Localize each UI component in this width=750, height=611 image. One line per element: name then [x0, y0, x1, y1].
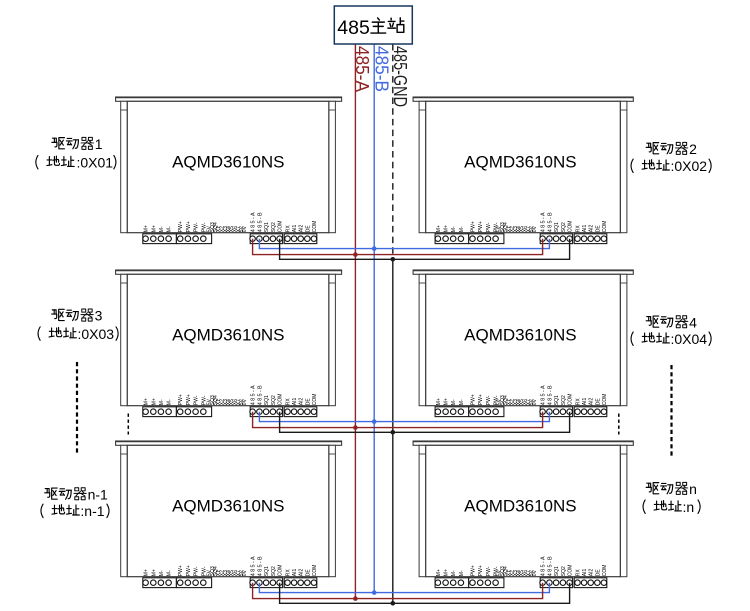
svg-text::0X02: :0X02 [671, 158, 708, 174]
svg-text:4: 4 [689, 314, 697, 330]
svg-text:1: 1 [95, 136, 103, 152]
svg-text:n-1: n-1 [88, 486, 108, 502]
svg-text:485-B: 485-B [371, 46, 391, 92]
svg-text:2: 2 [689, 141, 697, 157]
svg-text:3: 3 [95, 308, 103, 324]
svg-text::n: :n [683, 499, 695, 515]
svg-text:485-GND: 485-GND [390, 46, 410, 107]
svg-text:485: 485 [337, 17, 370, 39]
svg-text:n: n [689, 481, 697, 497]
svg-text::0X03: :0X03 [78, 326, 115, 342]
svg-text::0X04: :0X04 [671, 331, 708, 347]
svg-text::n-1: :n-1 [80, 503, 104, 519]
svg-text:485-A: 485-A [352, 46, 372, 92]
svg-text::0X01: :0X01 [75, 155, 113, 171]
